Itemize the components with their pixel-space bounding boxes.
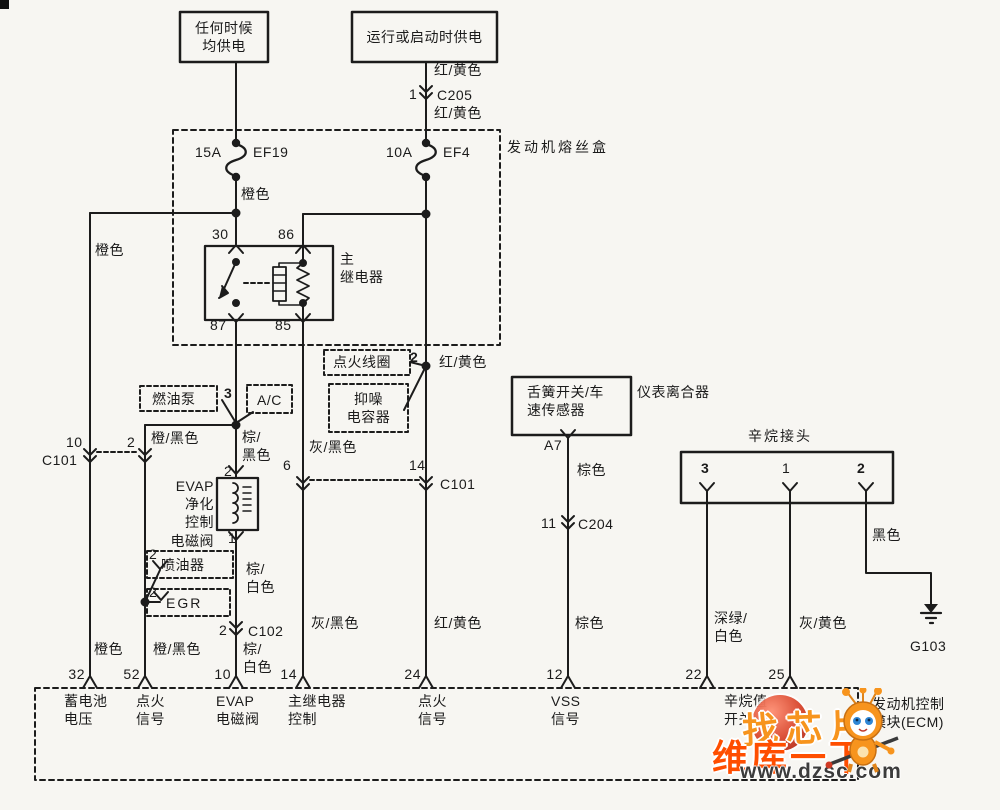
c101-right-name: C101	[440, 475, 475, 493]
ecm-pin-14: 14	[269, 665, 297, 683]
wire-color-orange-left-top: 橙色	[95, 241, 124, 259]
instrument-cluster-label: 仪表离合器	[637, 383, 710, 401]
relay-pin-86: 86	[278, 225, 295, 243]
vss-pin-a7: A7	[544, 436, 562, 454]
ignition-coil-pin: 2	[410, 348, 418, 366]
wire-color-dark-green-white: 深绿/ 白色	[714, 609, 747, 645]
ac-label: A/C	[257, 391, 282, 409]
c101-left-pin-a: 10	[66, 433, 83, 451]
ground-g103-label: G103	[910, 637, 946, 655]
ecm-pin-32: 32	[57, 665, 85, 683]
wire-color-orange-fuse: 橙色	[241, 185, 270, 203]
relay-pin-30: 30	[212, 225, 229, 243]
c102-name: C102	[248, 622, 283, 640]
connector-c205-pin: 1	[409, 85, 417, 103]
egr-label: EGR	[166, 594, 202, 612]
wire-color-red-yellow-bottom: 红/黄色	[434, 614, 482, 632]
vss-sensor-label: 舌簧开关/车 速传感器	[527, 383, 604, 419]
wire-color-brown-bottom: 棕色	[575, 614, 604, 632]
ecm-pin-52: 52	[112, 665, 140, 683]
relay-pin-85: 85	[275, 316, 292, 334]
ecm-label-battery-voltage: 蓄电池 电压	[64, 692, 108, 728]
ground-symbol	[921, 604, 941, 623]
injector-pin: 2	[149, 545, 157, 563]
wire-color-orange-left-bottom: 橙色	[94, 640, 123, 658]
wire-color-gray-yellow: 灰/黄色	[799, 614, 847, 632]
fuse-ef19-name: EF19	[253, 143, 288, 161]
wire-color-orange-black-bottom: 橙/黑色	[153, 640, 201, 658]
ecm-label-evap-valve: EVAP 电磁阀	[216, 692, 260, 728]
ecm-label-main-relay-control: 主继电器 控制	[288, 692, 346, 728]
ecm-pin-10: 10	[203, 665, 231, 683]
wire-color-gray-black-top: 灰/黑色	[309, 438, 357, 456]
wire-color-brown-black: 棕/ 黑色	[242, 428, 271, 464]
wire-color-orange-black-top: 橙/黑色	[151, 429, 199, 447]
wiring-diagram: 任何时候 均供电 运行或启动时供电 红/黄色 1 C205 红/黄色 发动机熔丝…	[0, 0, 1000, 810]
c101-right-pin-b: 14	[409, 456, 426, 474]
wire-color-red-yellow-a: 红/黄色	[434, 61, 482, 79]
ecm-pin-24: 24	[393, 665, 421, 683]
wire-color-brown-white-top: 棕/ 白色	[246, 560, 275, 596]
relay-pin-87: 87	[210, 316, 227, 334]
c101-left-pin-b: 2	[127, 433, 135, 451]
scan-artifact	[0, 0, 9, 9]
wire-color-brown-top: 棕色	[577, 461, 606, 479]
wire-color-red-yellow-junction: 红/黄色	[439, 353, 487, 371]
octane-pin-2: 2	[857, 459, 865, 477]
evap-valve-label: EVAP 净化 控制 电磁阀	[168, 477, 214, 550]
c101-right-pin-a: 6	[283, 456, 291, 474]
c204-name: C204	[578, 515, 613, 533]
ecm-label-ignition-signal-a: 点火 信号	[136, 692, 165, 728]
injector-label: 喷油器	[161, 556, 205, 574]
main-relay-label: 主 继电器	[340, 250, 384, 286]
evap-pin-bottom: 1	[228, 529, 236, 547]
fuel-pump-pin: 3	[224, 384, 232, 402]
wire-color-red-yellow-b: 红/黄色	[434, 104, 482, 122]
fuel-pump-label: 燃油泵	[152, 390, 196, 408]
fuse-ef4-amp: 10A	[386, 143, 412, 161]
wire-color-brown-white-bottom: 棕/ 白色	[243, 640, 272, 676]
ecm-label-ignition-signal-b: 点火 信号	[418, 692, 447, 728]
ecm-pin-12: 12	[535, 665, 563, 683]
octane-pin-1: 1	[782, 459, 790, 477]
ecm-label-vss-signal: VSS 信号	[551, 692, 581, 728]
fuse-ef19-amp: 15A	[195, 143, 221, 161]
evap-pin-top: 2	[224, 462, 232, 480]
ecm-pin-22: 22	[674, 665, 702, 683]
wire-color-black: 黑色	[872, 526, 901, 544]
ignition-coil-label: 点火线圈	[333, 353, 391, 371]
fusebox-label: 发动机熔丝盒	[507, 138, 609, 156]
power-always-box: 任何时候 均供电	[180, 12, 268, 62]
c102-pin: 2	[219, 621, 227, 639]
octane-connector-label: 辛烷接头	[748, 427, 812, 445]
egr-pin: 2	[149, 583, 157, 601]
fuse-ef4-name: EF4	[443, 143, 470, 161]
noise-capacitor-label: 抑噪 电容器	[329, 384, 408, 432]
power-run-start-box: 运行或启动时供电	[352, 12, 497, 62]
c101-left-name: C101	[42, 451, 77, 469]
wire-color-gray-black-bottom: 灰/黑色	[311, 614, 359, 632]
watermark-mascot	[818, 688, 913, 783]
c204-pin: 11	[541, 514, 557, 532]
main-relay-symbol	[205, 245, 333, 322]
connector-c205-name: C205	[437, 86, 472, 104]
octane-pin-3: 3	[701, 459, 709, 477]
ecm-pin-25: 25	[757, 665, 785, 683]
